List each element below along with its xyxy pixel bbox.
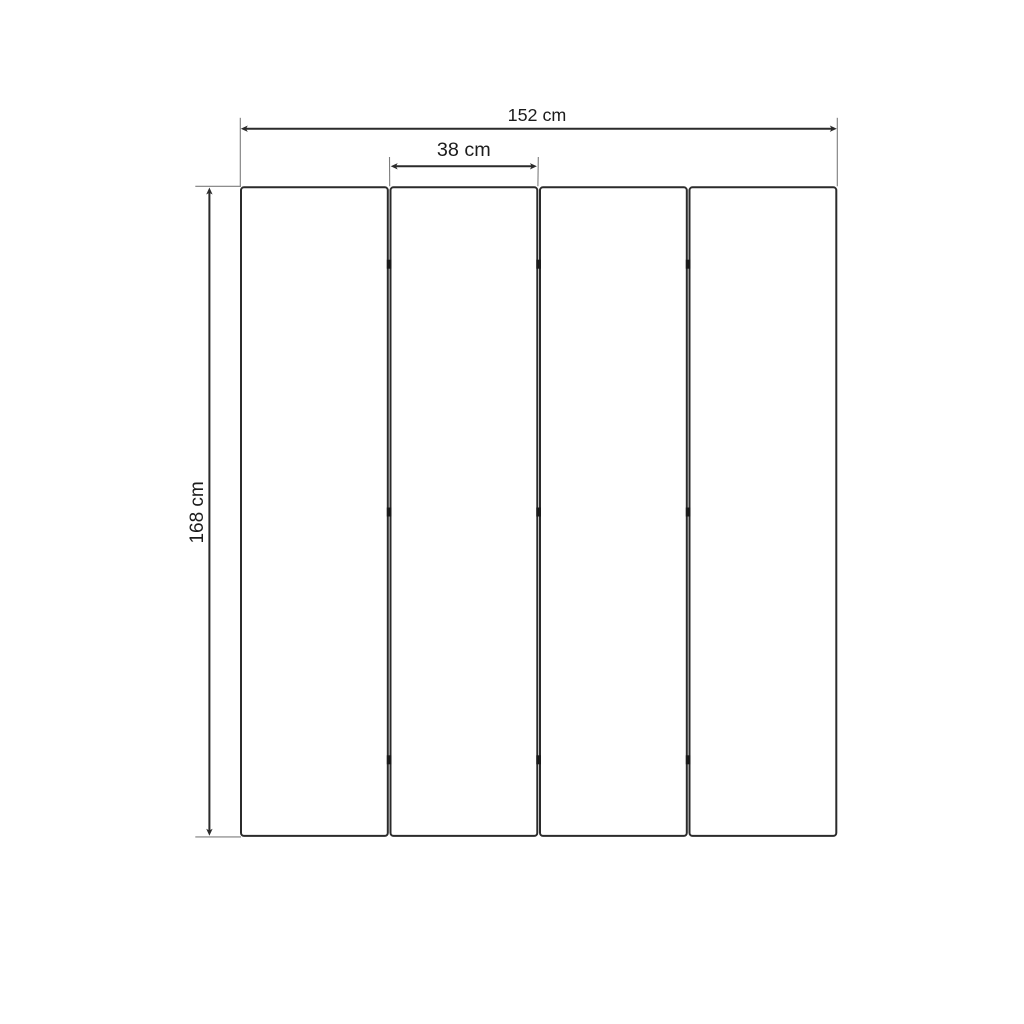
svg-text:38 cm: 38 cm (437, 139, 491, 161)
svg-text:168 cm: 168 cm (187, 481, 208, 543)
svg-text:152 cm: 152 cm (508, 105, 567, 125)
